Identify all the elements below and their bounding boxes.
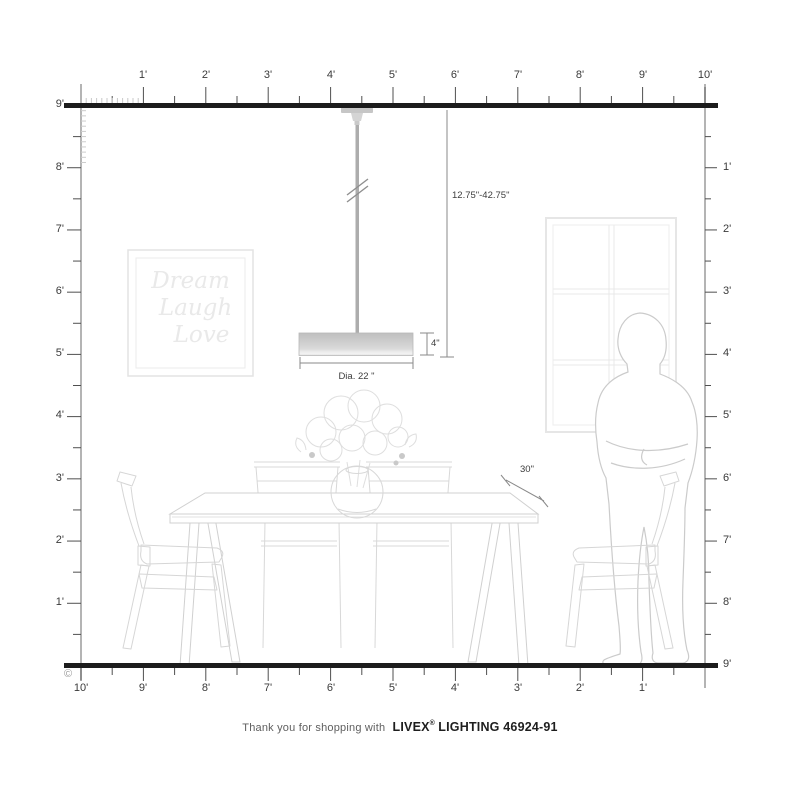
pendant-rod <box>356 115 360 334</box>
shade-diameter-label: Dia. 22 " <box>300 371 413 382</box>
ruler-label-left: 5' <box>38 347 64 360</box>
shade-height-label: 4" <box>431 338 440 349</box>
wall-art-word: Dream <box>136 268 245 295</box>
ruler-label-top: 7' <box>506 69 530 82</box>
ruler-label-right: 4' <box>723 347 749 360</box>
ruler-label-bottom: 3' <box>506 682 530 695</box>
ruler-label-right: 7' <box>723 534 749 547</box>
ruler-label-left: 2' <box>38 534 64 547</box>
footer-prefix: Thank you for shopping with <box>242 722 385 734</box>
wall-art-word: Laugh <box>136 295 245 322</box>
ruler-label-left: 9' <box>38 98 64 111</box>
ruler-label-right: 2' <box>723 223 749 236</box>
ceiling-canopy <box>341 108 373 114</box>
floor-line <box>64 663 718 668</box>
ruler-label-top: 1' <box>131 69 155 82</box>
footer-text: Thank you for shopping with LIVEX® LIGHT… <box>0 720 800 734</box>
ruler-label-left: 7' <box>38 223 64 236</box>
product-number: LIGHTING 46924-91 <box>438 720 557 734</box>
ruler-label-top: 6' <box>443 69 467 82</box>
copyright-symbol: © <box>64 668 72 680</box>
hang-range-label: 12.75"-42.75" <box>452 190 509 201</box>
drum-shade <box>299 333 413 356</box>
ruler-label-left: 3' <box>38 472 64 485</box>
person-silhouette <box>596 313 698 665</box>
ruler-label-bottom: 10' <box>69 682 93 695</box>
ruler-label-top: 2' <box>194 69 218 82</box>
ruler-label-left: 4' <box>38 409 64 422</box>
ruler-label-left: 6' <box>38 285 64 298</box>
ruler-label-top: 5' <box>381 69 405 82</box>
ceiling-line <box>64 103 718 108</box>
ruler-label-bottom: 4' <box>443 682 467 695</box>
ruler-label-bottom: 5' <box>381 682 405 695</box>
registered-mark: ® <box>430 720 435 727</box>
brand-name: LIVEX <box>393 720 430 734</box>
ruler-label-bottom: 1' <box>631 682 655 695</box>
hang-height-line <box>440 110 454 357</box>
ruler-label-right: 6' <box>723 472 749 485</box>
ruler-label-right: 1' <box>723 161 749 174</box>
dining-table <box>170 493 538 666</box>
ruler-label-left: 8' <box>38 161 64 174</box>
ruler-label-right: 3' <box>723 285 749 298</box>
ruler-label-top: 10' <box>693 69 717 82</box>
wall-art-word: Love <box>136 322 245 349</box>
ruler-label-top: 8' <box>568 69 592 82</box>
ruler-label-bottom: 8' <box>194 682 218 695</box>
ruler-label-right: 5' <box>723 409 749 422</box>
pendant-light <box>299 108 413 356</box>
back-chairs <box>254 462 453 648</box>
product-dimension-diagram: 1' 2' 3' 4' 5' 6' 7' 8' 9' 10' 9' 8' 7' … <box>0 0 800 800</box>
wall-art-text: Dream Laugh Love <box>136 268 245 349</box>
scene-artwork <box>0 0 800 800</box>
diameter-line <box>300 357 413 369</box>
ruler-label-top: 9' <box>631 69 655 82</box>
dimension-lines <box>300 110 548 507</box>
ruler-label-top: 3' <box>256 69 280 82</box>
ruler-label-right: 9' <box>723 658 749 671</box>
ruler-label-top: 4' <box>319 69 343 82</box>
table-height-label: 30" <box>512 464 542 475</box>
ruler-label-bottom: 9' <box>131 682 155 695</box>
ruler-label-bottom: 7' <box>256 682 280 695</box>
ruler-label-left: 1' <box>38 596 64 609</box>
ruler-label-right: 8' <box>723 596 749 609</box>
ruler-label-bottom: 2' <box>568 682 592 695</box>
ruler-label-bottom: 6' <box>319 682 343 695</box>
